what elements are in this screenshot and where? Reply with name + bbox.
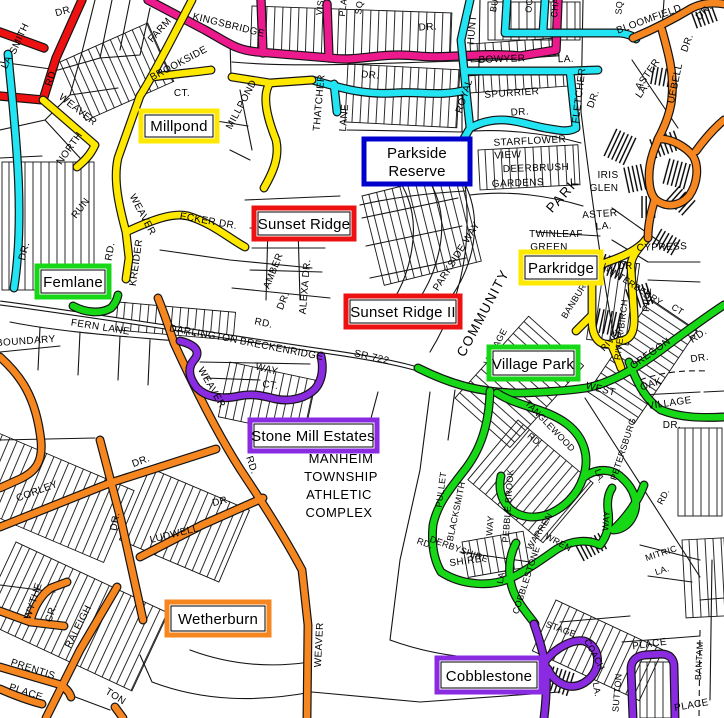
street-label: WAY: [484, 515, 496, 536]
street-label: GARDENS: [492, 177, 545, 190]
millpond-box: Millpond: [141, 111, 217, 141]
street-label: RD.: [253, 316, 273, 331]
cobblestone-label: Cobblestone: [446, 668, 532, 685]
area-label-complex: COMPLEX: [305, 505, 372, 520]
wetherburn-label: Wetherburn: [178, 611, 258, 628]
street-label: ASTER: [582, 208, 618, 221]
sunset-ridge2-label: Sunset Ridge II: [350, 304, 456, 321]
sunset-ridge-label: Sunset Ridge: [258, 216, 350, 233]
map-canvas: SMITH LA. DR. RD. WEAVER FARM BROOKSIDE …: [0, 0, 724, 718]
street-label: VIEW: [494, 149, 522, 161]
parkside-label-line1: Parkside: [387, 145, 447, 162]
street-label: DR.: [690, 352, 710, 365]
village-park-label: Village Park: [492, 356, 574, 373]
sunset-ridge2-box: Sunset Ridge II: [346, 296, 460, 327]
street-label: TWINLEAF: [529, 229, 583, 240]
street-label: RD.: [44, 67, 60, 88]
street-label: BRECKENRIDGE: [239, 336, 324, 363]
street-label: CT.: [262, 379, 280, 392]
street-label: DR.: [679, 33, 696, 54]
cobblestone-box: Cobblestone: [437, 658, 541, 692]
millpond-label: Millpond: [150, 118, 207, 135]
street-label: DR.: [275, 290, 292, 311]
street-label: MITRIC: [644, 543, 678, 563]
street-label: PETERSBURG: [608, 417, 638, 482]
street-label: IRIS: [597, 170, 618, 181]
street-label: DR.: [361, 69, 380, 82]
street-map: SMITH LA. DR. RD. WEAVER FARM BROOKSIDE …: [0, 0, 724, 718]
street-label: DR.: [585, 89, 602, 110]
parkside-label-line2: Reserve: [388, 163, 445, 180]
street-label: RD.: [655, 487, 672, 506]
street-label: BOWYER: [478, 53, 525, 66]
stone-mill-box: Stone Mill Estates: [250, 420, 377, 451]
village-park-box: Village Park: [489, 347, 578, 379]
street-label: BANTAM: [693, 641, 705, 680]
street-label: HUNT: [466, 15, 480, 45]
street-label: VIS: [314, 0, 326, 16]
street-label: DR.: [418, 22, 437, 34]
street-label: LA.: [558, 54, 575, 66]
street-label: LA.: [591, 682, 603, 698]
street-label: CT.: [174, 88, 190, 99]
street-label: WEAVER: [313, 622, 326, 668]
street-label: DEERBRUSH: [503, 162, 570, 175]
street-label: SQ: [613, 1, 624, 15]
street-label: OC: [523, 0, 534, 13]
street-label: SR 722: [353, 348, 390, 367]
street-label: DR.: [663, 420, 681, 431]
street-label: GLEN: [590, 183, 619, 194]
femlane-box: Femlane: [37, 266, 109, 297]
parkridge-label: Parkridge: [528, 260, 594, 277]
street-label: WAY: [600, 510, 612, 531]
street-label: SUTTON: [610, 673, 623, 712]
street-label: SQ: [353, 0, 365, 15]
street-label: LA.: [654, 563, 671, 577]
street-label: CYPRESS: [636, 241, 687, 254]
sunset-ridge-box: Sunset Ridge: [254, 208, 354, 239]
area-label-township: TOWNSHIP: [304, 469, 378, 484]
femlane-label: Femlane: [43, 274, 103, 291]
street-label: LANE: [338, 103, 351, 132]
street-label: CHA: [549, 0, 561, 18]
area-label-athletic: ATHLETIC: [306, 487, 372, 502]
street-label: LA.: [595, 220, 612, 232]
street-label: MILLPOND: [224, 78, 259, 131]
parkridge-box: Parkridge: [521, 252, 601, 283]
parkside-reserve-box: Parkside Reserve: [364, 139, 470, 184]
street-label: DR.: [510, 106, 529, 118]
stone-mill-label: Stone Mill Estates: [251, 428, 375, 445]
street-label: RD.: [104, 242, 118, 262]
wetherburn-box: Wetherburn: [167, 602, 269, 635]
